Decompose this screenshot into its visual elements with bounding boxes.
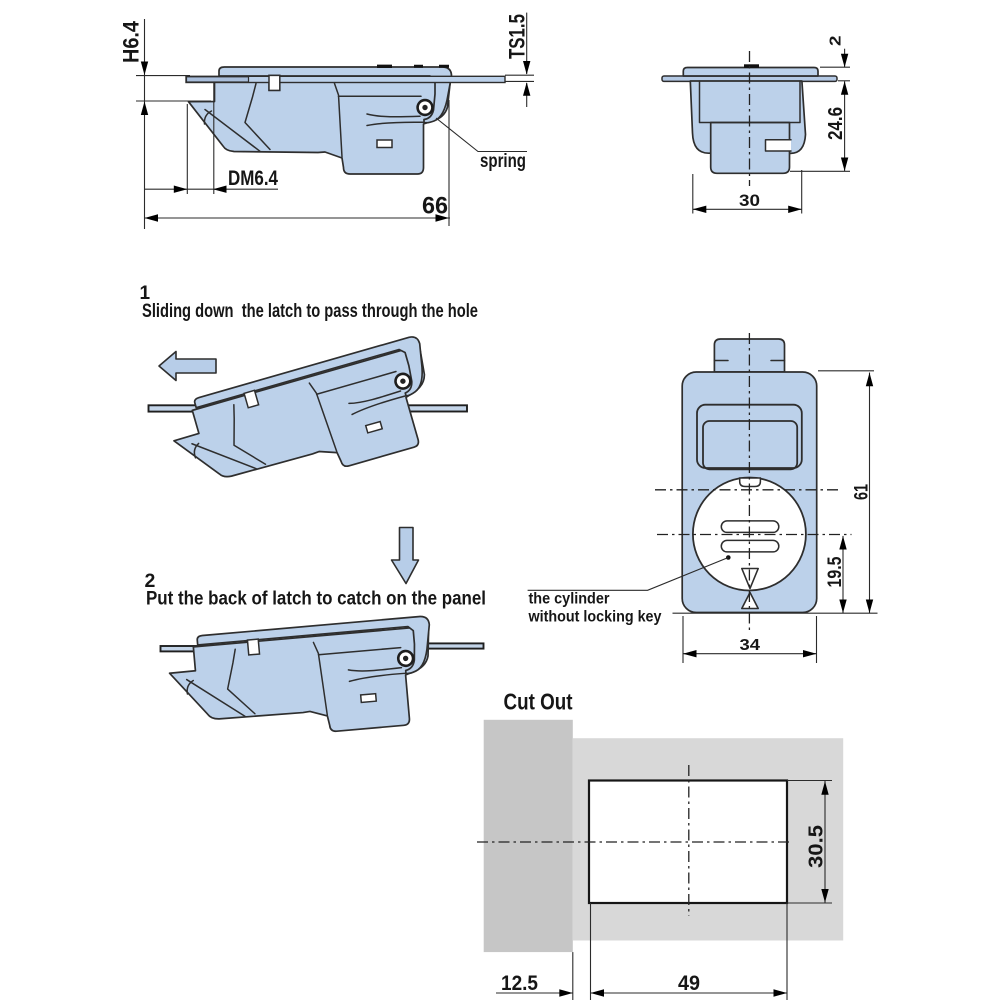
svg-text:2: 2 [828, 36, 845, 47]
svg-text:Put the back of latch to catch: Put the back of latch to catch on the pa… [146, 588, 486, 610]
svg-text:Cut Out: Cut Out [504, 689, 573, 715]
svg-text:without locking key: without locking key [528, 609, 662, 626]
svg-text:30: 30 [739, 191, 760, 210]
svg-text:34: 34 [740, 637, 761, 654]
svg-text:12.5: 12.5 [501, 972, 538, 995]
svg-text:61: 61 [851, 484, 873, 500]
svg-text:DM6.4: DM6.4 [228, 167, 278, 190]
svg-text:spring: spring [480, 151, 526, 172]
svg-text:66: 66 [422, 193, 448, 220]
svg-text:49: 49 [678, 972, 700, 995]
svg-text:Sliding down the latch to pas: Sliding down the latch to pass through t… [142, 300, 478, 322]
svg-text:24.6: 24.6 [825, 107, 847, 140]
svg-text:19.5: 19.5 [825, 556, 846, 587]
svg-text:the cylinder: the cylinder [529, 591, 610, 608]
svg-text:H6.4: H6.4 [119, 20, 144, 63]
svg-text:30.5: 30.5 [806, 825, 828, 868]
svg-text:TS1.5: TS1.5 [505, 14, 530, 59]
